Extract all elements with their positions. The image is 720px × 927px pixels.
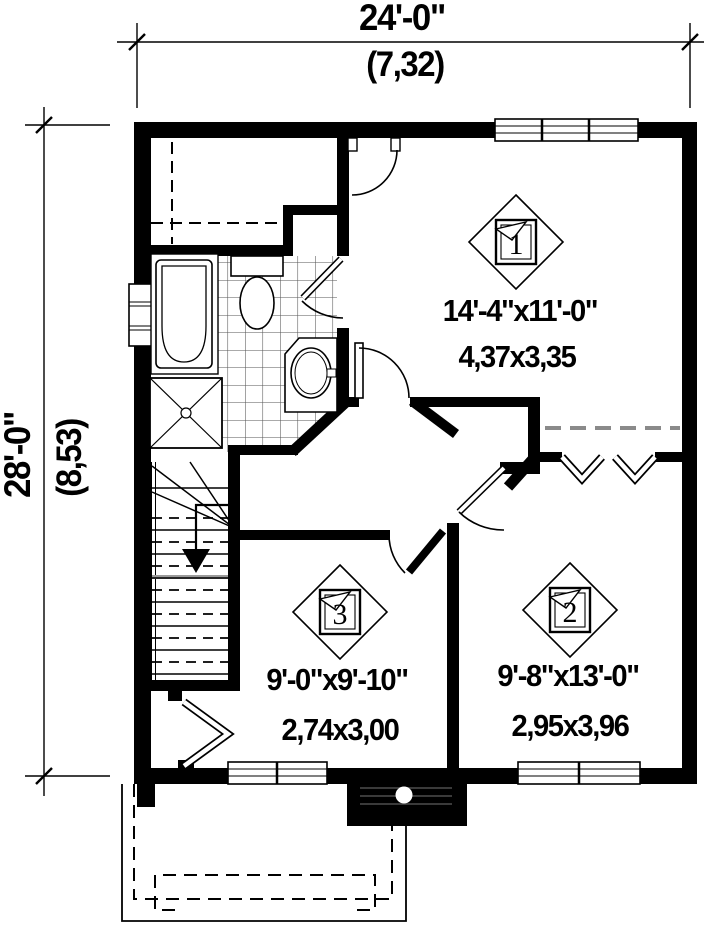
room-tag-1: 1 — [469, 195, 563, 289]
window-left — [129, 284, 153, 346]
wall-exterior-right — [682, 122, 697, 784]
wall-linen-left — [283, 215, 293, 256]
walls — [134, 122, 697, 807]
top-dimension-metric: (7,32) — [366, 45, 443, 85]
entry-light — [396, 787, 413, 804]
wall-closet2-stub-right — [655, 452, 682, 462]
wall-room3-top — [228, 530, 390, 540]
bifold-door-room3-closet — [184, 702, 228, 766]
room-tag-number: 3 — [333, 598, 348, 631]
wall-stairs-hall-stub — [228, 445, 298, 455]
room2-size-imperial: 9'-8"x13'-0" — [497, 658, 638, 694]
room1-size-imperial: 14'-4"x11'-0" — [443, 293, 597, 329]
door-bedroom3 — [389, 531, 443, 573]
entry-steps — [347, 776, 467, 826]
down-arrow — [182, 505, 236, 573]
porch-post — [137, 782, 155, 807]
room3-size-imperial: 9'-0"x9'-10" — [266, 662, 407, 698]
room-tag-number: 2 — [563, 596, 578, 629]
room1-size-metric: 4,37x3,35 — [459, 339, 576, 375]
door-bedroom1-top — [348, 138, 400, 195]
sink-vanity — [285, 338, 337, 412]
floor-plan-drawing: 1 2 3 — [0, 0, 720, 927]
room2-size-metric: 2,95x3,96 — [512, 708, 629, 744]
wall-hall-top — [410, 397, 540, 407]
wall-exterior-left — [134, 122, 151, 784]
wall-stairs-bottom — [151, 680, 240, 691]
bathtub — [151, 254, 218, 374]
window-top-triple — [495, 119, 638, 141]
room-tag-3: 3 — [293, 565, 387, 659]
wall-room2-left — [447, 523, 459, 776]
faucet — [327, 369, 336, 377]
window-bottom-room3 — [228, 762, 327, 784]
door-bedroom1 — [355, 343, 409, 398]
shower — [150, 378, 222, 448]
room-tag-number: 1 — [509, 228, 524, 261]
wall-bath-east-lower — [337, 328, 349, 407]
window-bottom-room2 — [518, 762, 640, 784]
staircase — [152, 462, 237, 684]
room3-size-metric: 2,74x3,00 — [282, 712, 399, 748]
door-bedroom2 — [459, 468, 504, 530]
left-dimension-metric: (8,53) — [50, 419, 90, 496]
floor-plan: 1 2 3 24'-0" (7,32) 28'-0" (8,53) 14'-4"… — [0, 0, 720, 927]
room-tag-2: 2 — [523, 563, 617, 657]
porch-inner-dashed — [155, 875, 375, 910]
top-dimension-imperial: 24'-0" — [359, 0, 445, 39]
door-jamb — [168, 690, 182, 701]
left-dimension-imperial: 28'-0" — [0, 412, 39, 498]
bifold-doors-room2-closet — [562, 457, 655, 479]
tread-dashed-lines — [152, 518, 228, 662]
wall-stairs-right — [228, 445, 240, 690]
wall-bath-east-upper — [337, 136, 349, 256]
